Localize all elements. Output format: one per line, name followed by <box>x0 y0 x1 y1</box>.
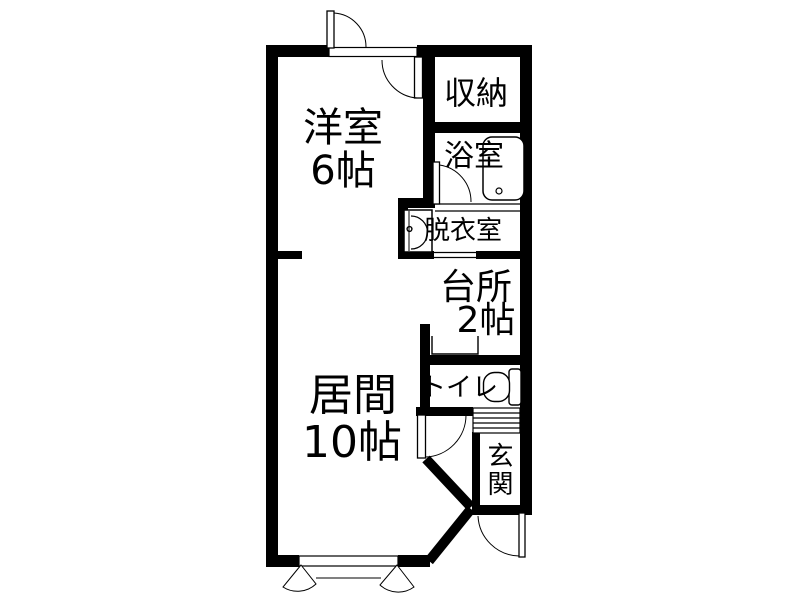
label-closet: 収納 <box>444 77 508 109</box>
front-door-swing <box>478 516 519 556</box>
wall-entrance-left <box>472 432 480 508</box>
bottom-window-threshold <box>299 556 398 566</box>
front-door-leaf <box>519 513 525 557</box>
bathroom-door-leaf <box>433 162 440 204</box>
entrance-step-outline <box>473 408 520 433</box>
wall-dressing-bottom-b <box>476 251 532 259</box>
wall-room-divider-stub <box>266 251 302 259</box>
label-western-room: 洋室 <box>303 108 383 148</box>
wall-diagonal-lower <box>429 509 471 561</box>
label-entrance: 玄関 <box>485 442 511 498</box>
bottom-window <box>283 565 414 592</box>
top-inner-door-swing <box>382 60 417 98</box>
toilet-tank-icon <box>509 369 521 405</box>
wall-bottom-mid <box>398 555 430 567</box>
wall-right <box>520 45 532 515</box>
label-living-room-size: 10帖 <box>302 421 402 465</box>
label-bathroom: 浴室 <box>444 142 504 172</box>
floorplan-drawing <box>0 0 800 600</box>
top-door-threshold <box>329 48 417 57</box>
label-living-room: 居間 <box>309 374 397 418</box>
wall-bottom-left <box>266 555 299 567</box>
top-outer-door-leaf <box>327 11 334 48</box>
label-toilet: トイレ <box>420 375 498 401</box>
toilet-door-leaf <box>418 415 426 458</box>
window-fan-left <box>283 565 316 591</box>
label-dressing-room: 脱衣室 <box>424 218 502 244</box>
label-western-room-size: 6帖 <box>310 151 375 191</box>
wall-kitchen-bottom <box>420 355 532 365</box>
window-fan-right <box>380 565 414 592</box>
top-outer-door-swing <box>334 13 366 47</box>
wall-closet-bottom <box>423 122 532 133</box>
top-inner-door-leaf <box>415 57 423 98</box>
wall-diagonal-upper <box>426 459 471 507</box>
floorplan-page: 洋室 6帖 居間 10帖 収納 浴室 脱衣室 台所 2帖 トイレ 玄関 <box>0 0 800 600</box>
label-kitchen-size: 2帖 <box>457 303 516 339</box>
entrance-step-hatch <box>473 408 520 433</box>
toilet-door-swing <box>426 415 467 457</box>
wall-left <box>266 45 278 567</box>
